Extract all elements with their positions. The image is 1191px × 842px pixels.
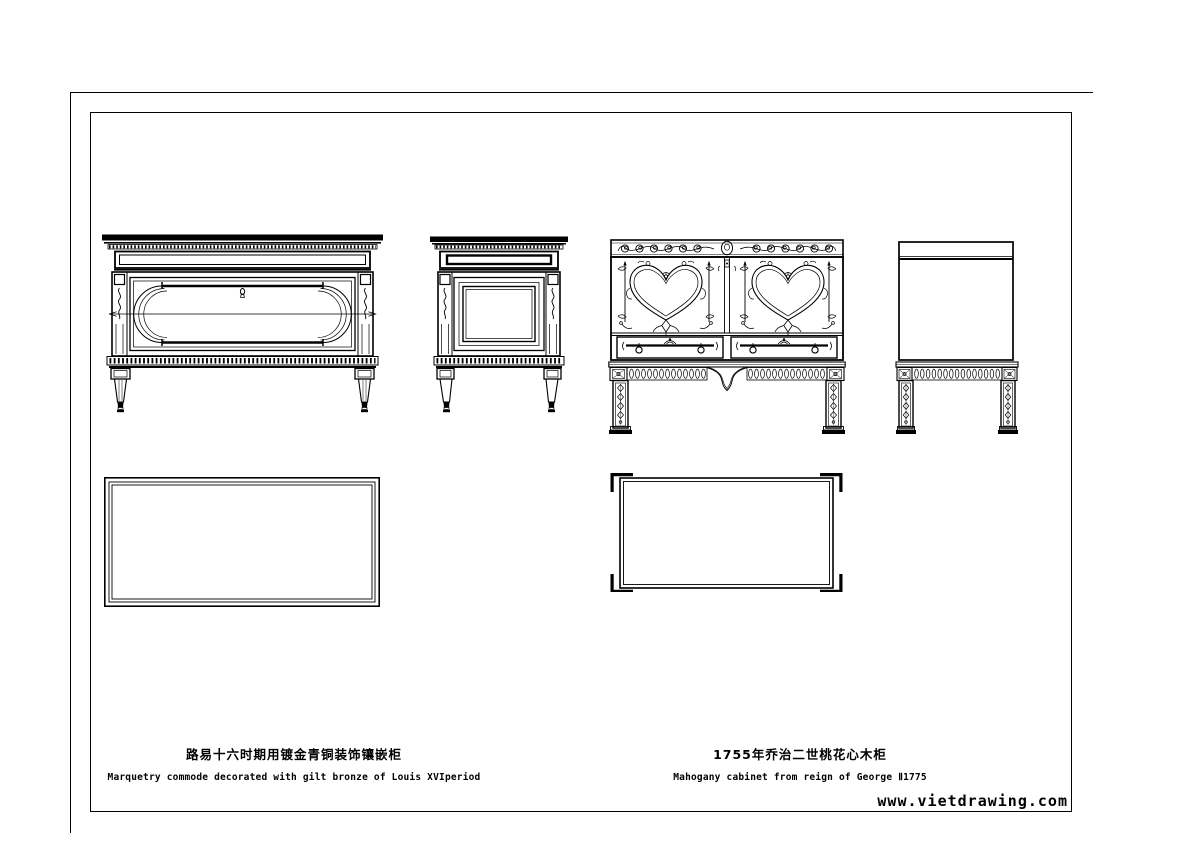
commode-caption-zh: 路易十六时期用镀金青铜装饰镶嵌柜 [104, 744, 484, 763]
cad-sheet: 路易十六时期用镀金青铜装饰镶嵌柜 Marquetry commode decor… [0, 0, 1191, 842]
sheet-border-left-line [70, 92, 71, 833]
commode-front-elevation [100, 232, 385, 414]
cabinet-front-elevation [608, 236, 846, 436]
watermark-url: www.vietdrawing.com [860, 792, 1068, 810]
commode-caption-en: Marquetry commode decorated with gilt br… [104, 772, 484, 783]
cabinet-caption-zh: 1755年乔治二世桃花心木柜 [655, 744, 945, 763]
cabinet-plan-view [608, 472, 845, 592]
sheet-border-top-line [70, 92, 1093, 93]
commode-caption: 路易十六时期用镀金青铜装饰镶嵌柜 Marquetry commode decor… [104, 744, 484, 783]
cabinet-side-elevation [895, 236, 1020, 436]
cabinet-caption: 1755年乔治二世桃花心木柜 Mahogany cabinet from rei… [655, 744, 945, 783]
cabinet-caption-en: Mahogany cabinet from reign of George Ⅱ1… [655, 772, 945, 783]
commode-side-elevation [428, 232, 570, 414]
drawing-frame [90, 112, 1072, 812]
commode-plan-view [104, 477, 380, 607]
